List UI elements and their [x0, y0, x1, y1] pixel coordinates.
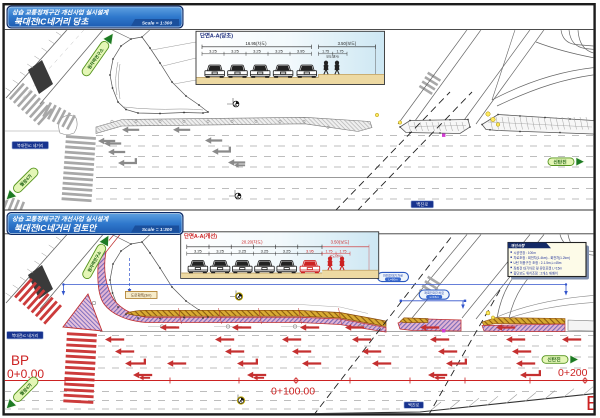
svg-text:신탄진: 신탄진: [547, 356, 561, 363]
svg-text:횡단보도 위치조정 : 2개소 재배치: 횡단보도 위치조정 : 2개소 재배치: [514, 270, 558, 275]
svg-text:3.25: 3.25: [216, 248, 225, 253]
svg-text:Scale = 1:300: Scale = 1:300: [142, 227, 173, 233]
svg-text:1.75: 1.75: [322, 50, 329, 54]
svg-text:백진로: 백진로: [408, 402, 420, 408]
svg-text:3.25: 3.25: [231, 49, 240, 54]
svg-text:3.25: 3.25: [253, 49, 262, 54]
svg-text:단면A-A(당초): 단면A-A(당초): [200, 32, 233, 40]
svg-text:도로확폭(3m): 도로확폭(3m): [131, 292, 152, 297]
svg-text:0+100.00: 0+100.00: [271, 386, 315, 398]
svg-text:16.95(차도): 16.95(차도): [246, 40, 268, 47]
svg-text:3.25: 3.25: [209, 49, 218, 54]
svg-text:상습 교통정체구간 개선사업 실시설계: 상습 교통정체구간 개선사업 실시설계: [12, 215, 110, 223]
svg-text:3.50(보도): 3.50(보도): [338, 41, 357, 46]
svg-text:Scale = 1:300: Scale = 1:300: [142, 21, 173, 27]
svg-text:좌회전 대기차로 및 유턴포켓 L=15m: 좌회전 대기차로 및 유턴포켓 L=15m: [514, 265, 563, 270]
svg-text:북대전IC네거리 당초: 북대전IC네거리 당초: [14, 17, 89, 27]
svg-text:북대전IC네거리 검토안: 북대전IC네거리 검토안: [14, 223, 98, 233]
svg-text:1.75: 1.75: [337, 50, 344, 54]
svg-text:신탄진: 신탄진: [553, 158, 567, 165]
svg-text:상습 교통정체구간 개선사업 실시설계: 상습 교통정체구간 개선사업 실시설계: [12, 9, 110, 17]
svg-text:3.25: 3.25: [283, 248, 292, 253]
svg-text:시공연장 : 100m: 시공연장 : 100m: [514, 250, 537, 255]
svg-text:3.25: 3.25: [275, 49, 284, 54]
svg-text:A: A: [237, 295, 240, 300]
svg-text:3.95: 3.95: [306, 248, 315, 253]
svg-text:3.95: 3.95: [297, 49, 306, 54]
svg-text:1.75: 1.75: [340, 249, 347, 253]
svg-text:보도(경사): 보도(경사): [326, 53, 339, 58]
svg-text:BP: BP: [11, 353, 29, 368]
svg-text:북대전IC 네거리: 북대전IC 네거리: [17, 143, 44, 148]
svg-text:A: A: [239, 399, 242, 404]
svg-text:북대전IC 네거리: 북대전IC 네거리: [12, 333, 39, 338]
svg-text:차로조정 : 회전차(1.4km) - 회전차(1.2km): 차로조정 : 회전차(1.4km) - 회전차(1.2km): [514, 255, 570, 260]
svg-text:단면A-A(개선): 단면A-A(개선): [184, 232, 217, 240]
svg-text:백진로: 백진로: [416, 201, 428, 208]
svg-text:0+0.00: 0+0.00: [7, 367, 44, 381]
svg-text:개선사항: 개선사항: [511, 243, 526, 248]
svg-text:3.25: 3.25: [194, 248, 203, 253]
svg-text:3.25: 3.25: [238, 248, 247, 253]
svg-text:L=60m: L=60m: [388, 277, 398, 281]
svg-text:U턴 허용구간 조정 : 2-1.5m,L=45m: U턴 허용구간 조정 : 2-1.5m,L=45m: [514, 260, 562, 265]
svg-text:1.75: 1.75: [326, 249, 333, 253]
svg-text:A: A: [234, 102, 237, 107]
svg-text:0+200: 0+200: [558, 367, 588, 379]
svg-text:3.25: 3.25: [261, 248, 270, 253]
svg-text:A: A: [236, 194, 239, 199]
svg-text:L=15m: L=15m: [430, 295, 440, 299]
svg-text:3.50(보도): 3.50(보도): [331, 240, 350, 245]
svg-text:20.20(차도): 20.20(차도): [242, 239, 264, 246]
